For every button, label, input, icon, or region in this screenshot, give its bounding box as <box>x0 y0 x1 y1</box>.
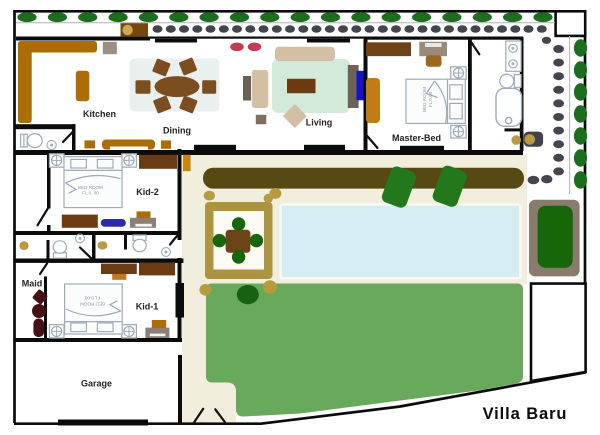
svg-text:Kid-1: Kid-1 <box>136 302 159 312</box>
svg-text:Villa Baru: Villa Baru <box>483 405 568 423</box>
svg-text:Living: Living <box>306 118 333 128</box>
svg-text:BED ROOM: BED ROOM <box>80 302 105 307</box>
svg-text:FL 0. 00: FL 0. 00 <box>82 190 99 195</box>
svg-text:Master-Bed: Master-Bed <box>392 133 441 143</box>
svg-text:BED ROOM: BED ROOM <box>78 185 103 190</box>
svg-text:Maid: Maid <box>22 279 43 289</box>
svg-text:Garage: Garage <box>81 379 112 389</box>
svg-text:Kitchen: Kitchen <box>83 109 116 119</box>
svg-text:BED ROOM: BED ROOM <box>422 87 427 112</box>
svg-text:Dining: Dining <box>163 126 191 136</box>
svg-text:Kid-2: Kid-2 <box>136 187 159 197</box>
svg-text:FL 0.00: FL 0.00 <box>84 296 100 301</box>
svg-text:FL 0.00: FL 0.00 <box>428 91 433 107</box>
